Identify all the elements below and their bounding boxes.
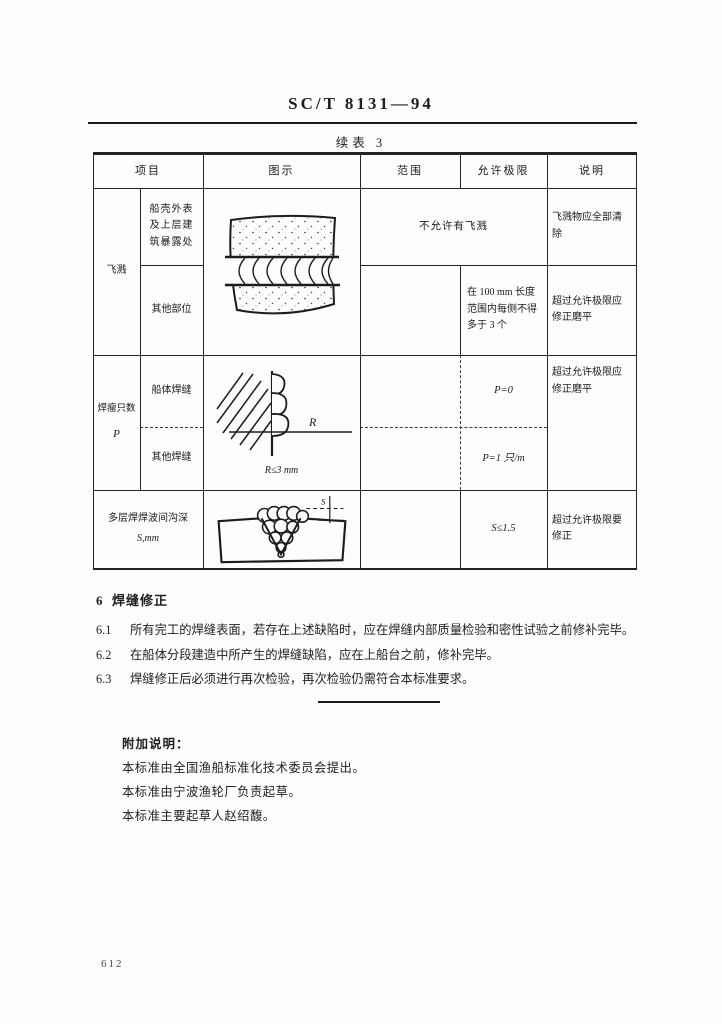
figure-overlap-cell: R R≤3 mm — [203, 355, 360, 490]
cell-item-hull-exterior: 船壳外表及上层建筑暴露处 — [140, 188, 203, 265]
cell-limit-p0: P=0 — [460, 355, 547, 427]
doc-number: SC/T 8131—94 — [0, 94, 722, 114]
clause-number: 6.3 — [96, 671, 130, 689]
cell-group-spatter: 飞溅 — [93, 188, 140, 355]
spatter-plate-illustration — [211, 208, 353, 336]
section-number: 6 — [96, 593, 104, 608]
col-header-item: 项目 — [93, 155, 203, 188]
cell-note-correct: 超过允许极限要修正 — [547, 490, 636, 568]
table-right-border — [636, 152, 637, 570]
multilayer-weld-illustration: S — [208, 490, 356, 568]
clause-6-1: 6.1 所有完工的焊缝表面，若存在上述缺陷时，应在焊缝内部质量检验和密性试验之前… — [96, 622, 636, 640]
figure-groove-cell: S — [203, 490, 360, 568]
figure-spatter-cell — [203, 188, 360, 355]
figure-label-S: S — [321, 497, 326, 507]
cell-item-groove-symbol: S,mm — [137, 531, 159, 548]
cell-item-hull-welds: 船体焊缝 — [140, 355, 203, 427]
appendix-heading: 附加说明： — [122, 733, 190, 752]
col-header-limit: 允许极限 — [460, 155, 547, 188]
clause-number: 6.1 — [96, 622, 130, 640]
weld-overlap-illustration: R — [209, 365, 355, 461]
cell-item-other-welds: 其他焊缝 — [140, 427, 203, 490]
col-header-scope: 范围 — [360, 155, 460, 188]
cell-note-grind-1: 超过允许极限应修正磨平 — [547, 265, 636, 355]
cell-item-other-areas: 其他部位 — [140, 265, 203, 355]
figure-label-R: R — [308, 415, 317, 429]
page-number: 612 — [101, 958, 124, 970]
clause-6-2: 6.2 在船体分段建造中所产生的焊缝缺陷，应在上船台之前，修补完毕。 — [96, 647, 636, 665]
scanned-standard-page: SC/T 8131—94 续表 3 项目 图示 范围 允许极限 说明 飞溅 船壳… — [0, 0, 722, 1024]
cell-group-overlap-count: 焊瘤只数 — [97, 402, 135, 418]
defect-limits-table: 项目 图示 范围 允许极限 说明 飞溅 船壳外表及上层建筑暴露处 其他部位 焊瘤… — [93, 152, 637, 570]
appendix-line-drafter: 本标准主要起草人赵绍馥。 — [122, 806, 276, 824]
figure-overlap-caption: R≤3 mm — [265, 463, 299, 480]
table-caption: 续表 3 — [0, 132, 722, 151]
cell-item-groove-depth: 多层焊焊波间沟深 — [108, 511, 188, 528]
section-title: 焊缝修正 — [112, 593, 168, 608]
end-of-text-rule — [318, 701, 440, 703]
clause-text: 焊缝修正后必须进行再次检验，再次检验仍需符合本标准要求。 — [130, 671, 474, 689]
cell-group-overlap-symbol: P — [113, 425, 120, 443]
col-header-illustration: 图示 — [203, 155, 360, 188]
header-rule — [88, 122, 637, 124]
appendix-line-drafted-by: 本标准由宁波渔轮厂负责起草。 — [122, 782, 301, 800]
col-header-note: 说明 — [547, 155, 637, 188]
cell-note-grind-2: 超过允许极限应修正磨平 — [547, 355, 636, 490]
clause-text: 在船体分段建造中所产生的焊缝缺陷，应在上船台之前，修补完毕。 — [130, 647, 499, 665]
appendix-line-proposed-by: 本标准由全国渔船标准化技术委员会提出。 — [122, 758, 365, 776]
cell-limit-per-100mm: 在 100 mm 长度范围内每侧不得多于 3 个 — [460, 265, 547, 355]
clause-number: 6.2 — [96, 647, 130, 665]
table-bottom-border — [93, 568, 637, 570]
section-heading: 6 焊缝修正 — [96, 590, 168, 609]
clause-text: 所有完工的焊缝表面，若存在上述缺陷时，应在焊缝内部质量检验和密性试验之前修补完毕… — [130, 622, 634, 640]
cell-limit-p1: P=1 只/m — [460, 427, 547, 490]
clause-6-3: 6.3 焊缝修正后必须进行再次检验，再次检验仍需符合本标准要求。 — [96, 671, 636, 689]
cell-limit-s: S≤1.5 — [460, 490, 547, 568]
cell-note-remove-spatter: 飞溅物应全部清除 — [547, 188, 636, 265]
cell-limit-no-spatter: 不允许有飞溅 — [360, 188, 547, 265]
